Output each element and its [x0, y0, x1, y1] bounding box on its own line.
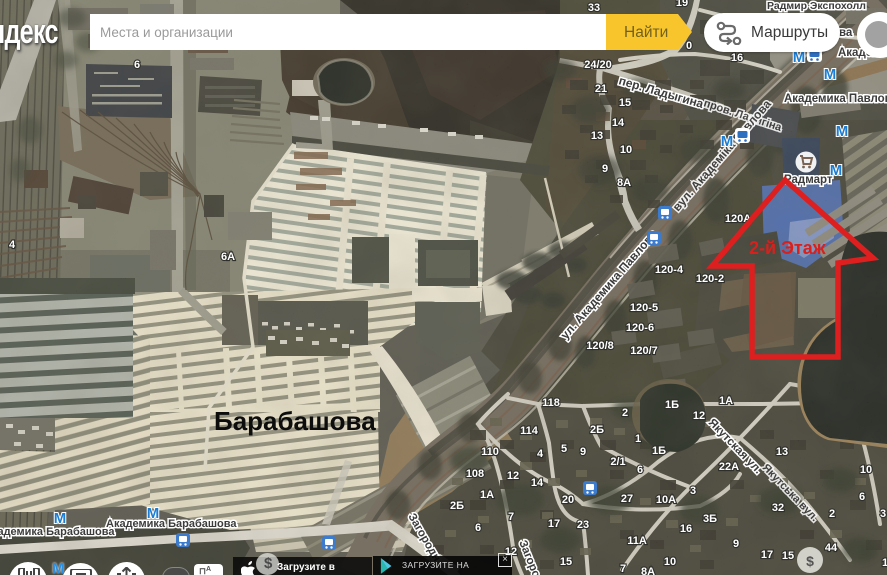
svg-text:20: 20 — [562, 494, 574, 506]
svg-text:16: 16 — [680, 523, 692, 535]
svg-text:9: 9 — [733, 538, 739, 550]
svg-text:$: $ — [806, 553, 814, 569]
svg-text:3: 3 — [690, 485, 696, 497]
svg-text:2Б: 2Б — [590, 424, 604, 436]
svg-text:2: 2 — [829, 508, 835, 520]
svg-text:32: 32 — [772, 502, 784, 514]
svg-text:М: М — [830, 162, 843, 179]
svg-text:3Б: 3Б — [703, 513, 717, 525]
svg-text:12: 12 — [693, 410, 705, 422]
svg-text:2: 2 — [622, 407, 628, 419]
svg-text:Радмир Экспохолл: Радмир Экспохолл — [767, 0, 866, 12]
svg-text:Академика Павлова: Академика Павлова — [784, 93, 887, 105]
svg-text:120-5: 120-5 — [630, 302, 658, 314]
svg-text:1А: 1А — [719, 395, 733, 407]
svg-text:10А: 10А — [656, 494, 676, 506]
svg-text:6: 6 — [134, 59, 140, 71]
svg-text:Академика Барабашова: Академика Барабашова — [106, 518, 237, 530]
svg-text:2-й Этаж: 2-й Этаж — [749, 238, 826, 258]
svg-text:10: 10 — [664, 556, 676, 568]
svg-text:6: 6 — [859, 491, 865, 503]
svg-text:22А: 22А — [719, 461, 739, 473]
svg-text:14: 14 — [531, 477, 544, 489]
svg-text:15: 15 — [782, 550, 794, 562]
svg-text:0: 0 — [686, 40, 692, 52]
svg-text:1А: 1А — [480, 489, 494, 501]
svg-text:9: 9 — [580, 446, 586, 458]
svg-text:4: 4 — [537, 448, 544, 460]
svg-text:6: 6 — [475, 522, 481, 534]
svg-text:ва: ва — [839, 27, 853, 39]
svg-text:Академика Барабашова: Академика Барабашова — [0, 526, 115, 538]
svg-text:13: 13 — [776, 446, 788, 458]
svg-text:118: 118 — [542, 397, 560, 409]
svg-text:6А: 6А — [221, 251, 235, 263]
svg-text:М: М — [824, 66, 837, 83]
svg-text:1Б: 1Б — [665, 399, 679, 411]
svg-text:33: 33 — [588, 2, 600, 14]
svg-text:3: 3 — [880, 508, 886, 520]
svg-text:10: 10 — [620, 144, 632, 156]
svg-text:14: 14 — [612, 117, 625, 129]
svg-text:21: 21 — [595, 83, 607, 95]
svg-text:М: М — [836, 123, 849, 140]
svg-text:5: 5 — [561, 443, 567, 455]
svg-text:7: 7 — [620, 563, 626, 575]
svg-text:44: 44 — [825, 542, 838, 554]
svg-text:15: 15 — [560, 556, 572, 568]
svg-text:4: 4 — [9, 239, 16, 251]
svg-text:15: 15 — [619, 97, 631, 109]
svg-text:114: 114 — [520, 425, 539, 437]
svg-text:9: 9 — [602, 163, 608, 175]
svg-text:1Б: 1Б — [652, 445, 666, 457]
svg-text:Барабашова: Барабашова — [214, 406, 376, 436]
svg-text:23: 23 — [577, 519, 589, 531]
svg-text:120-2: 120-2 — [696, 273, 724, 285]
svg-text:110: 110 — [481, 446, 499, 458]
svg-text:М: М — [54, 510, 67, 527]
svg-text:16: 16 — [731, 52, 743, 64]
svg-text:2/1: 2/1 — [610, 456, 625, 468]
svg-text:120-6: 120-6 — [626, 322, 654, 334]
svg-text:8А: 8А — [617, 177, 631, 189]
svg-text:17: 17 — [548, 518, 560, 530]
svg-text:24/20: 24/20 — [584, 59, 612, 71]
svg-text:М: М — [721, 133, 734, 150]
svg-text:11А: 11А — [627, 535, 647, 547]
svg-text:М: М — [147, 505, 160, 522]
svg-text:2Б: 2Б — [450, 500, 464, 512]
svg-text:108: 108 — [466, 468, 484, 480]
svg-text:13: 13 — [591, 130, 603, 142]
svg-text:120/8: 120/8 — [586, 340, 614, 352]
svg-text:6: 6 — [637, 464, 643, 476]
svg-text:27: 27 — [621, 493, 633, 505]
svg-text:120/7: 120/7 — [630, 345, 658, 357]
svg-text:7: 7 — [508, 511, 514, 523]
svg-text:17: 17 — [761, 549, 773, 561]
svg-text:19: 19 — [676, 0, 688, 9]
svg-text:1: 1 — [882, 557, 887, 569]
svg-text:8А: 8А — [641, 566, 655, 575]
svg-text:1: 1 — [635, 433, 641, 445]
svg-text:12: 12 — [507, 470, 519, 482]
svg-text:10: 10 — [860, 464, 872, 476]
svg-text:120-4: 120-4 — [655, 264, 684, 276]
